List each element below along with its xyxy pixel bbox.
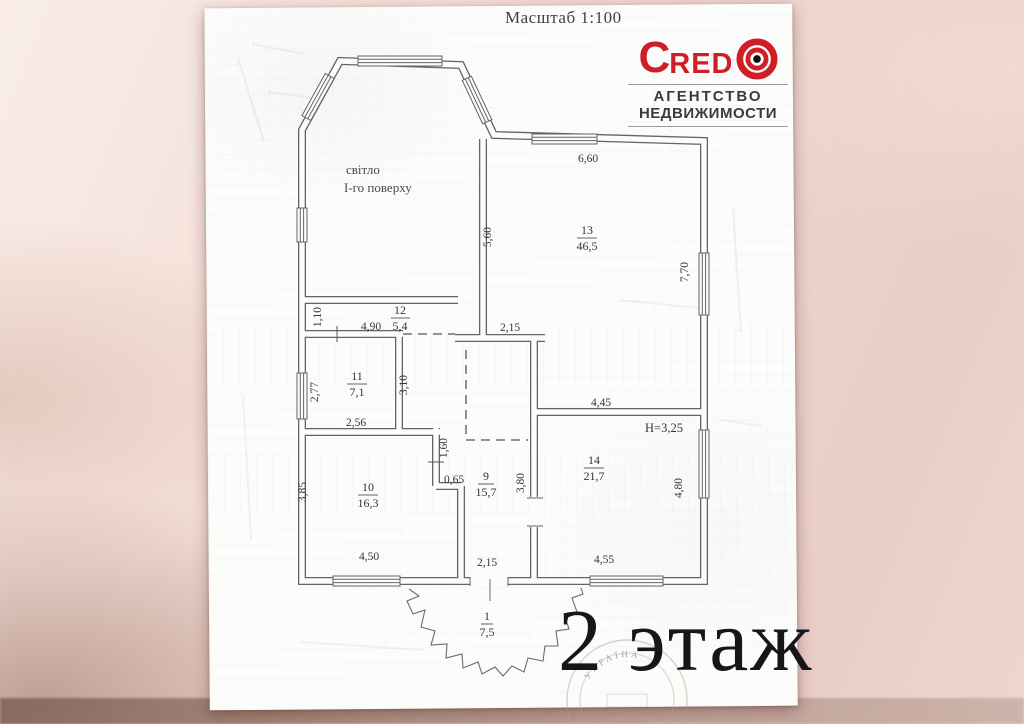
ceiling-height-note: H=3,25: [645, 421, 683, 435]
window-room13-top: [532, 134, 597, 144]
svg-text:1,10: 1,10: [312, 307, 324, 327]
room-label-9: 9 15,7: [476, 469, 497, 499]
window-room14-right: [699, 430, 709, 498]
svg-text:2,56: 2,56: [346, 417, 366, 429]
svg-text:12: 12: [394, 303, 406, 317]
svg-text:1,60: 1,60: [438, 438, 450, 458]
svg-text:3,85: 3,85: [297, 482, 309, 502]
svg-text:14: 14: [588, 453, 600, 467]
room-label-11: 11 7,1: [347, 369, 367, 399]
svg-text:5,60: 5,60: [482, 227, 494, 247]
room-label-10: 10 16,3: [358, 480, 379, 510]
svg-text:7,1: 7,1: [350, 385, 365, 399]
svg-text:15,7: 15,7: [476, 485, 497, 499]
svg-text:11: 11: [351, 369, 363, 383]
svg-text:7,70: 7,70: [679, 262, 691, 282]
window-room14-bottom: [590, 576, 663, 586]
floor-plan: світло І-го поверху 13 46,5 12 5,4 11 7,…: [0, 0, 1024, 724]
svg-text:2,77: 2,77: [309, 382, 321, 402]
svg-text:10: 10: [362, 480, 374, 494]
light-well-line1: світло: [346, 162, 380, 177]
window-lightwell-left: [297, 208, 307, 242]
room-label-12: 12 5,4: [391, 303, 410, 333]
window-room11-left: [297, 373, 307, 419]
svg-text:4,90: 4,90: [361, 321, 381, 333]
stair-opening-dashed: [403, 334, 528, 440]
svg-text:3,10: 3,10: [398, 375, 410, 395]
balcony-outline: [407, 588, 583, 676]
svg-text:4,50: 4,50: [359, 551, 379, 563]
dimensions-vertical: 5,60 7,70 1,10 2,77 3,10 1,60 3,85 3,80 …: [297, 227, 691, 502]
window-room13-right: [699, 253, 709, 315]
room-label-14: 14 21,7: [584, 453, 605, 483]
svg-text:13: 13: [581, 223, 593, 237]
svg-text:2,15: 2,15: [477, 557, 497, 569]
svg-text:7,5: 7,5: [480, 625, 495, 639]
svg-text:4,55: 4,55: [594, 554, 614, 566]
light-well-label: світло І-го поверху: [344, 162, 412, 195]
room-label-13: 13 46,5: [577, 223, 598, 253]
room-label-balcony: 1 7,5: [480, 609, 495, 639]
svg-text:3,80: 3,80: [515, 473, 527, 493]
svg-text:4,80: 4,80: [673, 478, 685, 498]
light-well-line2: І-го поверху: [344, 180, 412, 195]
svg-text:5,4: 5,4: [393, 319, 408, 333]
floor-label: 2 этаж: [558, 598, 813, 686]
window-bay-top: [358, 56, 442, 66]
svg-text:21,7: 21,7: [584, 469, 605, 483]
svg-text:46,5: 46,5: [577, 239, 598, 253]
window-room10-bottom: [333, 576, 400, 586]
svg-text:4,45: 4,45: [591, 397, 611, 409]
svg-text:16,3: 16,3: [358, 496, 379, 510]
svg-text:1: 1: [484, 609, 490, 623]
svg-text:9: 9: [483, 469, 489, 483]
scanned-photo: Масштаб 1:100 C RED АГЕНТСТВО НЕДВИЖИМОС…: [0, 0, 1024, 724]
svg-text:6,60: 6,60: [578, 153, 598, 165]
svg-text:2,15: 2,15: [500, 322, 520, 334]
svg-text:0,65: 0,65: [444, 474, 464, 486]
window-bay-right: [462, 76, 491, 124]
